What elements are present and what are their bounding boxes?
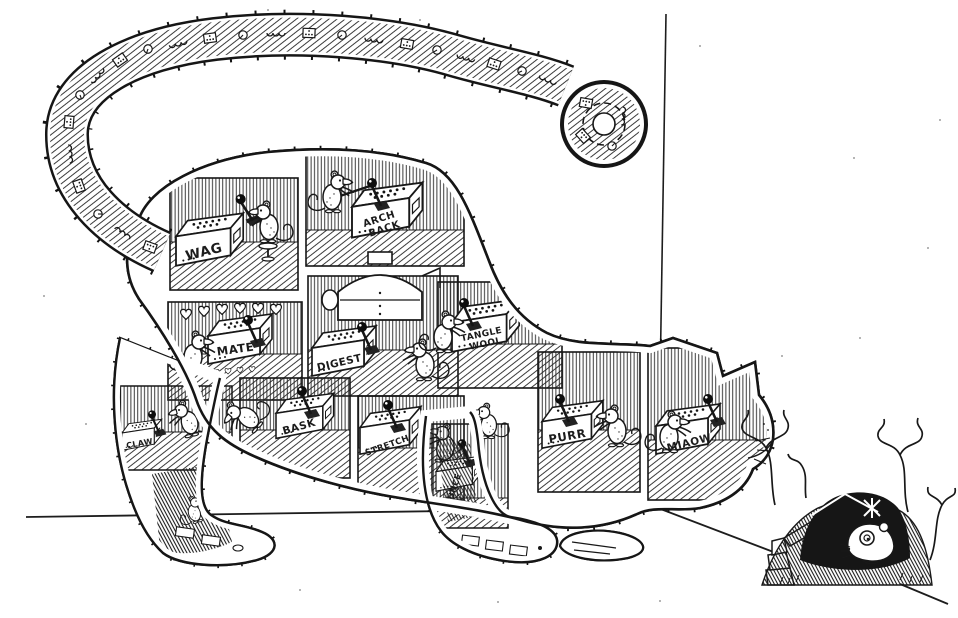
- room-wag: WAG: [170, 178, 298, 290]
- room-purr: PURR: [538, 352, 641, 492]
- cartoon-canvas: WAG ARCH BACK: [0, 0, 958, 618]
- floor-line-right: [658, 508, 784, 556]
- floor-line-far-right: [900, 584, 948, 604]
- cartoon-cat-machine: WAG ARCH BACK: [0, 0, 958, 618]
- interior-rooms: WAG ARCH BACK: [114, 149, 773, 565]
